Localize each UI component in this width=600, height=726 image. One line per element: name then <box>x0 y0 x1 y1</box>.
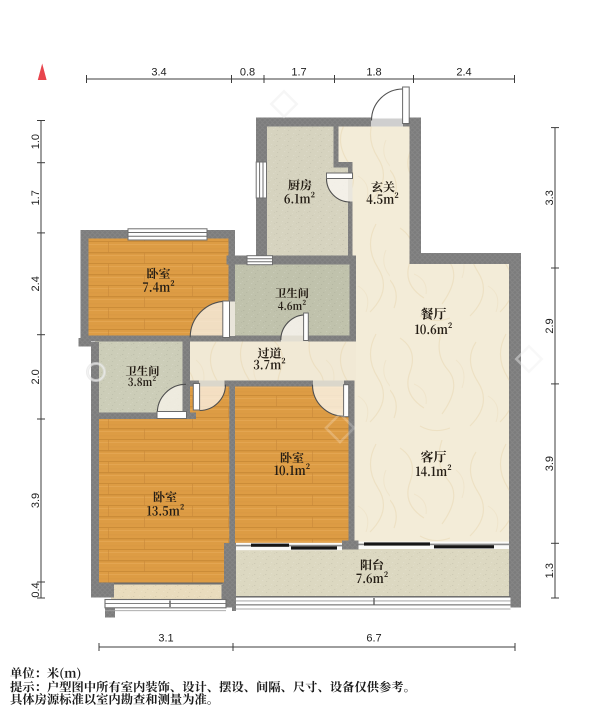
svg-text:1.3: 1.3 <box>544 563 556 578</box>
svg-text:1.7: 1.7 <box>30 190 42 205</box>
svg-text:2.9: 2.9 <box>544 318 556 333</box>
svg-text:3.9: 3.9 <box>544 456 556 471</box>
svg-text:2.4: 2.4 <box>456 67 471 79</box>
svg-text:0.8: 0.8 <box>240 67 255 79</box>
svg-text:3.9: 3.9 <box>30 493 42 508</box>
svg-text:3.1: 3.1 <box>158 633 173 645</box>
svg-text:2.0: 2.0 <box>30 369 42 384</box>
svg-text:3.4: 3.4 <box>151 67 166 79</box>
svg-text:0.4: 0.4 <box>30 582 42 597</box>
svg-text:3.3: 3.3 <box>544 190 556 205</box>
svg-text:6.7: 6.7 <box>366 633 381 645</box>
svg-text:1.8: 1.8 <box>366 67 381 79</box>
svg-text:1.0: 1.0 <box>30 134 42 149</box>
svg-text:2.4: 2.4 <box>30 276 42 291</box>
svg-text:1.7: 1.7 <box>291 67 306 79</box>
